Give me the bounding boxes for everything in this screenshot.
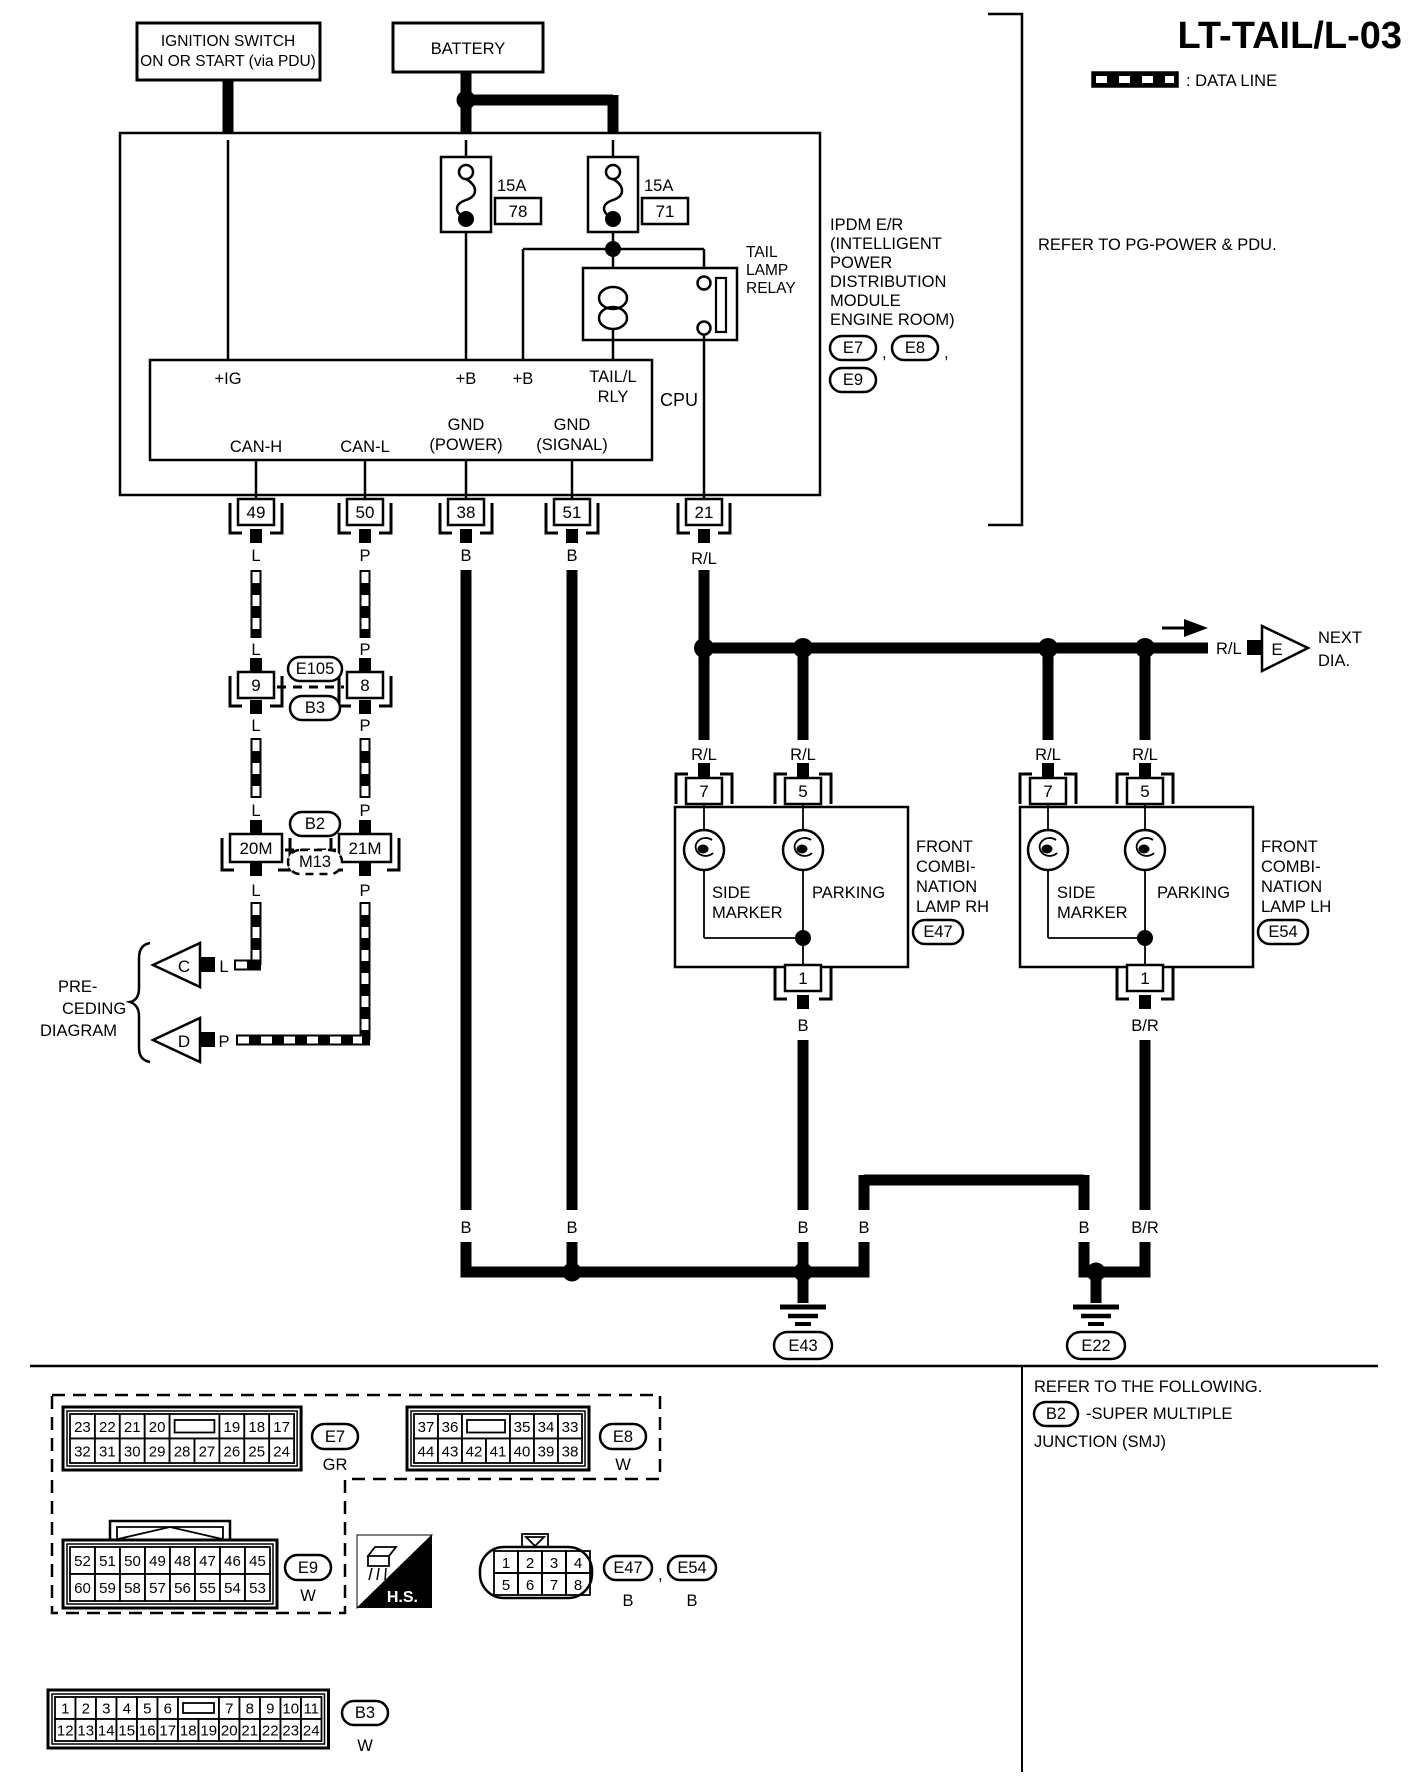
side-line: (INTELLIGENT xyxy=(830,235,942,253)
pin-cell-number: 39 xyxy=(538,1443,555,1460)
preceding-diagram: PRE- CEDING DIAGRAM C L D P xyxy=(40,943,230,1062)
wire-stub xyxy=(797,763,809,777)
pin-cell-number: 31 xyxy=(99,1443,116,1460)
wire-color-L: L xyxy=(251,802,260,820)
fuse1-amp: 15A xyxy=(497,177,526,195)
pin-cell-number: 36 xyxy=(442,1419,459,1436)
e8-color: W xyxy=(615,1456,631,1474)
fuse-bottom-terminal xyxy=(605,211,621,227)
pin-cell-number: 21 xyxy=(241,1723,258,1740)
pin-b1-label: +B xyxy=(456,370,477,388)
pin-cell-number: 48 xyxy=(174,1553,191,1570)
gnd-power-label-2: (POWER) xyxy=(429,436,502,454)
pin-cell-number: 22 xyxy=(262,1723,279,1740)
wire-color-RL: R/L xyxy=(1216,640,1242,658)
wire-color-B: B xyxy=(797,1017,808,1035)
e9-grid-label: E9 xyxy=(298,1559,318,1577)
connector-9: 9 xyxy=(251,676,260,695)
wire-color-RL: R/L xyxy=(1035,746,1061,764)
pin-50: 50 xyxy=(356,503,375,522)
lh-caption-4: LAMP LH xyxy=(1261,898,1331,916)
pin-cell-number: 37 xyxy=(418,1419,435,1436)
wire-stub xyxy=(359,820,371,834)
pin-cell-number: 9 xyxy=(266,1701,274,1718)
pin-cell-number: 1 xyxy=(61,1701,69,1718)
battery-label: BATTERY xyxy=(431,40,506,58)
ground-e22: E22 xyxy=(1067,1272,1125,1359)
e105-label: E105 xyxy=(296,660,335,678)
wire-stub xyxy=(250,700,262,714)
pin-cell-number: 7 xyxy=(225,1701,233,1718)
header: LT-TAIL/L-03 : DATA LINE REFER TO PG-POW… xyxy=(988,14,1402,525)
pin-cell-number: 40 xyxy=(514,1443,531,1460)
tail-bus: R/L E NEXT DIA. xyxy=(694,570,1362,671)
pin-cell-number: 47 xyxy=(199,1553,216,1570)
comma: , xyxy=(658,1566,663,1584)
pin-cell-number: 34 xyxy=(538,1419,555,1436)
preceding-brace xyxy=(130,943,150,1062)
pin-cell-number: 4 xyxy=(123,1701,131,1718)
e7-grid-label: E7 xyxy=(325,1428,345,1446)
e8-grid-label: E8 xyxy=(613,1428,633,1446)
wire-stub xyxy=(359,862,371,876)
connector-21m: 21M xyxy=(348,839,381,858)
fuse-bottom-terminal xyxy=(458,211,474,227)
lh-caption-3: NATION xyxy=(1261,878,1322,896)
e54-face-label: E54 xyxy=(677,1559,706,1577)
rh-pin-5: 5 xyxy=(798,782,807,801)
relay-box xyxy=(583,268,737,340)
wire-color-L: L xyxy=(251,717,260,735)
wire-stub xyxy=(250,529,262,543)
pin-cell-number: 18 xyxy=(248,1419,265,1436)
bulb-filament xyxy=(698,845,709,854)
pin-cell-number: 13 xyxy=(77,1723,94,1740)
pin-51: 51 xyxy=(563,503,582,522)
ipdm-bracket xyxy=(988,14,1022,525)
b3-label: B3 xyxy=(305,699,325,717)
smj-line-2: JUNCTION (SMJ) xyxy=(1034,1433,1166,1451)
blank-key-cell xyxy=(467,1420,505,1433)
pin-cell-number: 35 xyxy=(514,1419,531,1436)
pin-cell-number: 17 xyxy=(159,1723,176,1740)
next-dia-label-1: NEXT xyxy=(1318,629,1362,647)
wire-stub xyxy=(797,995,809,1009)
wire-stub xyxy=(1247,640,1262,655)
front-combination-lamp-lh: R/L R/L 7 5 SIDE MARKER PARKING 1 B/R FR… xyxy=(1020,648,1331,1035)
direction-arrow-head xyxy=(1184,619,1208,637)
wire-color-P: P xyxy=(359,547,370,565)
gnd-power-label-1: GND xyxy=(448,416,485,434)
cpu-block: +IG +B +B TAIL/L RLY CPU CAN-H CAN-L GND… xyxy=(150,360,698,460)
wire-stub xyxy=(359,658,371,672)
hs-label: H.S. xyxy=(387,1589,418,1606)
side-line: MODULE xyxy=(830,292,901,310)
lh-pin-7: 7 xyxy=(1043,782,1052,801)
lh-pin-5: 5 xyxy=(1140,782,1149,801)
wire-color-P: P xyxy=(359,717,370,735)
relay-label-1: TAIL xyxy=(746,244,778,261)
wire-color-B: B xyxy=(858,1219,869,1237)
pin-cell-number: 16 xyxy=(139,1723,156,1740)
e47-e54-connector-face: 1 2 3 4 5 6 7 8 E47 , E54 B B xyxy=(480,1534,716,1610)
ipdm-pins: 49 L 50 P 38 B 51 B 21 R/L xyxy=(230,499,730,568)
wire-stub xyxy=(359,529,371,543)
pin-cell-number: 12 xyxy=(57,1723,74,1740)
wire-color-P: P xyxy=(218,1033,229,1051)
wire-stub xyxy=(1139,995,1151,1009)
pin-cell-number: 43 xyxy=(442,1443,459,1460)
data-line-legend: : DATA LINE xyxy=(1092,72,1277,90)
e8-ref-label: E8 xyxy=(905,339,925,357)
pin-cell-number: 23 xyxy=(282,1723,299,1740)
pin-cell-number: 18 xyxy=(180,1723,197,1740)
pin-cell-number: 58 xyxy=(124,1580,141,1597)
pin-rly-label-1: TAIL/L xyxy=(589,368,636,386)
e7-color: GR xyxy=(323,1456,348,1474)
wire-color-B: B xyxy=(1078,1219,1089,1237)
e54-color: B xyxy=(686,1592,697,1610)
face-pin: 2 xyxy=(526,1555,534,1572)
ignition-label-2: ON OR START (via PDU) xyxy=(140,53,316,70)
side-marker-label-2: MARKER xyxy=(1057,904,1128,922)
rh-pin-1: 1 xyxy=(798,969,807,988)
pin-cell-number: 55 xyxy=(199,1580,216,1597)
wire-stub xyxy=(698,763,710,777)
pin-cell-number: 42 xyxy=(466,1443,483,1460)
m13-label: M13 xyxy=(299,853,331,871)
face-pin: 8 xyxy=(574,1577,582,1594)
wire-color-RL: R/L xyxy=(691,746,717,764)
e54-label: E54 xyxy=(1268,923,1297,941)
ignition-label-1: IGNITION SWITCH xyxy=(161,33,295,50)
wire-stub xyxy=(359,700,371,714)
wire-color-B: B xyxy=(797,1219,808,1237)
relay-label-3: RELAY xyxy=(746,280,796,297)
refer-note: REFER TO PG-POWER & PDU. xyxy=(1038,236,1277,254)
pinout-grid-B3: 123456789101112131415161718192021222324 xyxy=(48,1690,329,1748)
wire-color-P: P xyxy=(359,802,370,820)
side-line: ENGINE ROOM) xyxy=(830,311,955,329)
side-line: IPDM E/R xyxy=(830,216,903,234)
arrow-c-triangle xyxy=(153,943,200,987)
pin-cell-number: 20 xyxy=(221,1723,238,1740)
face-pin: 7 xyxy=(550,1577,558,1594)
wire-stub xyxy=(200,1032,215,1047)
e43-label: E43 xyxy=(788,1337,817,1355)
side-marker-label-2: MARKER xyxy=(712,904,783,922)
blank-key-cell xyxy=(183,1703,214,1713)
pin-cell-number: 51 xyxy=(99,1553,116,1570)
wire-stub xyxy=(250,658,262,672)
pin-cell-number: 26 xyxy=(224,1443,241,1460)
wire-color-B: B xyxy=(460,1219,471,1237)
wire-color-P: P xyxy=(359,882,370,900)
bulb-filament xyxy=(1139,845,1150,854)
rh-caption-3: NATION xyxy=(916,878,977,896)
pin-cell-number: 56 xyxy=(174,1580,191,1597)
pin-cell-number: 17 xyxy=(273,1419,290,1436)
cpu-label: CPU xyxy=(660,390,698,410)
pin-cell-number: 19 xyxy=(200,1723,217,1740)
wire-color-RL: R/L xyxy=(691,550,717,568)
side-line: POWER xyxy=(830,254,892,272)
pin-cell-number: 20 xyxy=(149,1419,166,1436)
wire-stub xyxy=(200,957,215,972)
e9-ref-label: E9 xyxy=(843,371,863,389)
pin-cell-number: 33 xyxy=(562,1419,579,1436)
wire-color-RL: R/L xyxy=(1132,746,1158,764)
fuse2-number: 71 xyxy=(656,202,675,221)
front-combination-lamp-rh: R/L R/L 7 5 SIDE MARKER PARKING 1 B FRON… xyxy=(675,648,989,1035)
footer-notes: REFER TO THE FOLLOWING. B2 -SUPER MULTIP… xyxy=(1034,1378,1262,1451)
pin-cell-number: 22 xyxy=(99,1419,116,1436)
e22-label: E22 xyxy=(1081,1337,1110,1355)
e47-face-label: E47 xyxy=(613,1559,642,1577)
side-marker-label-1: SIDE xyxy=(1057,884,1096,902)
connector-8: 8 xyxy=(360,676,369,695)
side-line: DISTRIBUTION xyxy=(830,273,946,291)
pin-cell-number: 53 xyxy=(249,1580,266,1597)
e9-hump-outer xyxy=(110,1521,230,1541)
bulb-filament xyxy=(797,845,808,854)
pin-rly-label-2: RLY xyxy=(598,388,629,406)
pin-cell-number: 27 xyxy=(199,1443,216,1460)
pin-cell-number: 10 xyxy=(282,1701,299,1718)
wire-stub xyxy=(250,862,262,876)
gnd-signal-label-2: (SIGNAL) xyxy=(536,436,608,454)
wire-stub xyxy=(566,529,578,543)
pin-cell-number: 41 xyxy=(490,1443,507,1460)
arrow-d-label: D xyxy=(178,1032,190,1051)
battery-junction-dot xyxy=(457,91,476,110)
wire-color-B: B xyxy=(566,547,577,565)
wire-stub xyxy=(460,529,472,543)
bulb-filament xyxy=(1042,845,1053,854)
refer-following: REFER TO THE FOLLOWING. xyxy=(1034,1378,1262,1396)
pin-cell-number: 54 xyxy=(224,1580,241,1597)
preceding-line-1: PRE- xyxy=(58,978,97,996)
fuse2-amp: 15A xyxy=(644,177,673,195)
next-dia-label-2: DIA. xyxy=(1318,652,1350,670)
blank-key-cell xyxy=(175,1420,215,1433)
relay-armature xyxy=(716,278,726,332)
comma: , xyxy=(944,344,949,362)
lh-pin-1: 1 xyxy=(1140,969,1149,988)
pinout-grid-E7: 23222120191817323130292827262524 xyxy=(63,1407,301,1470)
pin-cell-number: 59 xyxy=(99,1580,116,1597)
rh-caption-4: LAMP RH xyxy=(916,898,989,916)
pinout-grid-E8: 373635343344434241403938 xyxy=(407,1407,589,1470)
pin-cell-number: 32 xyxy=(74,1443,91,1460)
pin-cell-number: 15 xyxy=(118,1723,135,1740)
pin-cell-number: 14 xyxy=(98,1723,115,1740)
lh-caption-2: COMBI- xyxy=(1261,858,1321,876)
next-dia-triangle xyxy=(1262,626,1308,671)
wire-color-L: L xyxy=(251,641,260,659)
pin-cell-number: 60 xyxy=(74,1580,91,1597)
wire-color-B: B xyxy=(460,547,471,565)
rh-caption-1: FRONT xyxy=(916,838,973,856)
relay-branch-dot xyxy=(605,241,621,257)
pin-cell-number: 46 xyxy=(224,1553,241,1570)
pin-cell-number: 44 xyxy=(418,1443,435,1460)
pin-cell-number: 52 xyxy=(74,1553,91,1570)
pin-cell-number: 57 xyxy=(149,1580,166,1597)
wire-color-BR: B/R xyxy=(1131,1219,1159,1237)
wire-stub xyxy=(250,820,262,834)
comma: , xyxy=(882,344,887,362)
pin-ig-label: +IG xyxy=(214,370,241,388)
can-h-label: CAN-H xyxy=(230,438,282,456)
pin-cell-number: 45 xyxy=(249,1553,266,1570)
pin-cell-number: 25 xyxy=(248,1443,265,1460)
b3-grid-label: B3 xyxy=(355,1704,375,1722)
pin-cell-number: 38 xyxy=(562,1443,579,1460)
wire-color-L: L xyxy=(251,547,260,565)
rh-pin-7: 7 xyxy=(699,782,708,801)
pin-21: 21 xyxy=(695,503,714,522)
wire-stub xyxy=(698,529,710,543)
wire-color-L: L xyxy=(251,882,260,900)
preceding-line-2: CEDING xyxy=(62,1000,126,1018)
smj-line-1: -SUPER MULTIPLE xyxy=(1086,1405,1232,1423)
can-lines: L P 9 8 E105 B3 L P L P 20M 21M xyxy=(222,570,399,1040)
wiring-diagram: LT-TAIL/L-03 : DATA LINE REFER TO PG-POW… xyxy=(0,0,1408,1778)
face-pin: 5 xyxy=(502,1577,510,1594)
pin-cell-number: 19 xyxy=(224,1419,241,1436)
e47-label: E47 xyxy=(923,923,952,941)
arrow-c-label: C xyxy=(178,957,190,976)
arrow-d-triangle xyxy=(153,1018,200,1062)
side-marker-label-1: SIDE xyxy=(712,884,751,902)
ipdm-side-text: IPDM E/R (INTELLIGENT POWER DISTRIBUTION… xyxy=(830,216,955,392)
footer-b2-label: B2 xyxy=(1046,1405,1066,1423)
pin-cell-number: 5 xyxy=(143,1701,151,1718)
pin-cell-number: 30 xyxy=(124,1443,141,1460)
pin-cell-number: 2 xyxy=(82,1701,90,1718)
face-pin: 6 xyxy=(526,1577,534,1594)
page-title: LT-TAIL/L-03 xyxy=(1178,15,1402,57)
pin-cell-number: 29 xyxy=(149,1443,166,1460)
wire-color-B: B xyxy=(566,1219,577,1237)
ground-junction-dot xyxy=(563,1263,582,1282)
b2-label: B2 xyxy=(305,815,325,833)
face-pin: 3 xyxy=(550,1555,558,1572)
lh-caption-1: FRONT xyxy=(1261,838,1318,856)
next-dia-letter: E xyxy=(1271,640,1282,659)
gnd-signal-label-1: GND xyxy=(554,416,591,434)
wire-stub xyxy=(1042,763,1054,777)
connector-20m: 20M xyxy=(239,839,272,858)
wire-color-L: L xyxy=(219,958,228,976)
pin-cell-number: 8 xyxy=(246,1701,254,1718)
fuse1-number: 78 xyxy=(509,202,528,221)
e47-color: B xyxy=(622,1592,633,1610)
pin-cell-number: 11 xyxy=(303,1701,319,1718)
pin-cell-number: 23 xyxy=(74,1419,91,1436)
footer-section: 2322212019181732313029282726252437363534… xyxy=(30,1366,1378,1772)
wire-color-P: P xyxy=(359,641,370,659)
connector-notch-key xyxy=(526,1537,544,1546)
power-sources: IGNITION SWITCH ON OR START (via PDU) BA… xyxy=(137,23,613,140)
ipdm-block: 15A 78 15A 71 TAIL LAMP xyxy=(120,133,955,499)
parking-label: PARKING xyxy=(1157,884,1230,902)
data-line-label: : DATA LINE xyxy=(1186,72,1277,90)
ground-e43: E43 xyxy=(774,1272,832,1359)
pin-cell-number: 50 xyxy=(124,1553,141,1570)
wire-stub xyxy=(1139,763,1151,777)
preceding-line-3: DIAGRAM xyxy=(40,1022,117,1040)
pin-cell-number: 28 xyxy=(174,1443,191,1460)
pin-cell-number: 21 xyxy=(124,1419,141,1436)
wire-color-RL: R/L xyxy=(790,746,816,764)
pin-cell-number: 49 xyxy=(149,1553,166,1570)
pin-cell-number: 3 xyxy=(102,1701,110,1718)
rh-caption-2: COMBI- xyxy=(916,858,976,876)
pin-cell-number: 24 xyxy=(273,1443,290,1460)
pin-cell-number: 24 xyxy=(303,1723,320,1740)
face-pin: 1 xyxy=(502,1555,510,1572)
can-l-label: CAN-L xyxy=(340,438,390,456)
pin-b2-label: +B xyxy=(513,370,534,388)
e9-hump-key xyxy=(118,1527,222,1539)
parking-label: PARKING xyxy=(812,884,885,902)
pin-49: 49 xyxy=(247,503,266,522)
pinout-grid-E9: 52515049484746456059585756555453 xyxy=(63,1540,277,1608)
e7-ref-label: E7 xyxy=(843,339,863,357)
hs-mark: H.S. xyxy=(357,1535,432,1608)
e9-color: W xyxy=(300,1587,316,1605)
wire-color-BR: B/R xyxy=(1131,1017,1159,1035)
relay-label-2: LAMP xyxy=(746,262,788,279)
pin-cell-number: 6 xyxy=(164,1701,172,1718)
face-pin: 4 xyxy=(574,1555,582,1572)
pin-38: 38 xyxy=(457,503,476,522)
b3-color: W xyxy=(357,1737,373,1755)
ignition-switch-box xyxy=(137,23,320,80)
